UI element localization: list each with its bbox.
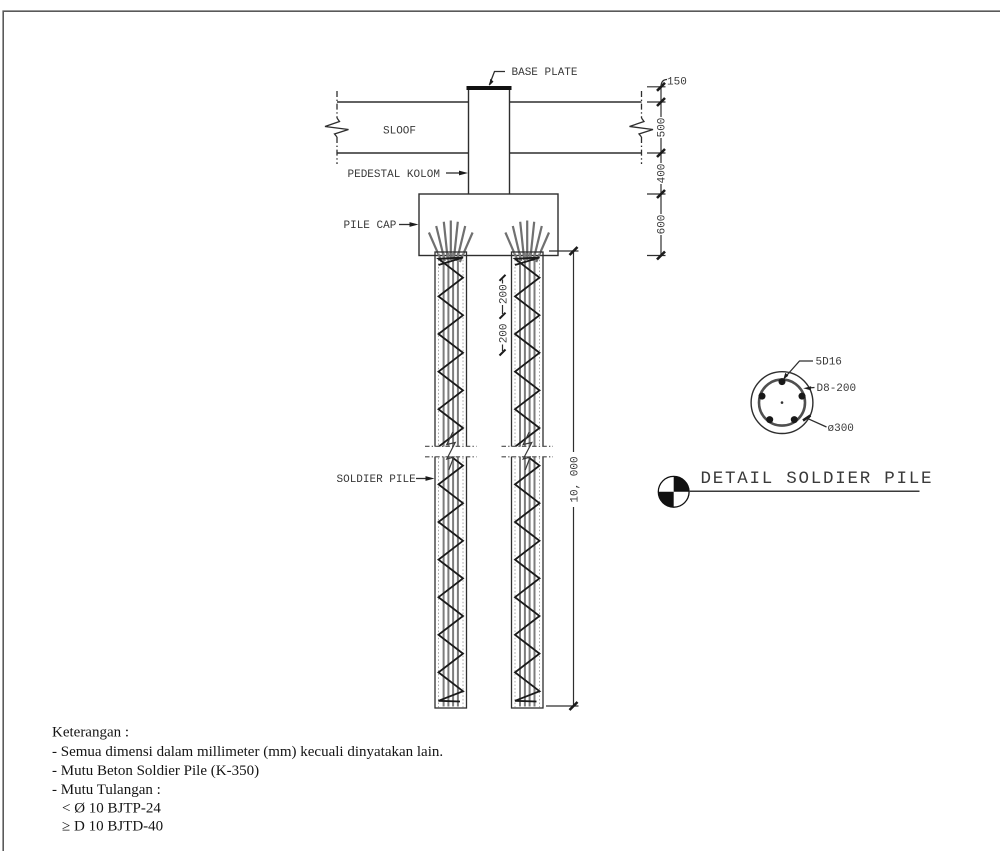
svg-text:600: 600 xyxy=(657,215,669,235)
svg-text:200: 200 xyxy=(499,323,511,343)
svg-text:SLOOF: SLOOF xyxy=(383,126,416,138)
svg-text:400: 400 xyxy=(657,164,669,184)
svg-text:SOLDIER PILE: SOLDIER PILE xyxy=(337,474,417,486)
svg-text:500: 500 xyxy=(657,118,669,138)
svg-text:- Semua dimensi dalam millimet: - Semua dimensi dalam millimeter (mm) ke… xyxy=(52,744,443,760)
svg-text:200: 200 xyxy=(499,284,511,304)
svg-text:D8-200: D8-200 xyxy=(817,383,857,395)
svg-text:BASE PLATE: BASE PLATE xyxy=(512,67,578,79)
svg-text:- Mutu Tulangan :: - Mutu Tulangan : xyxy=(52,782,161,798)
svg-text:ø300: ø300 xyxy=(828,423,854,435)
svg-text:≥ D 10 BJTD-40: ≥ D 10 BJTD-40 xyxy=(62,819,163,835)
svg-text:10, 000: 10, 000 xyxy=(570,456,582,502)
svg-text:PEDESTAL KOLOM: PEDESTAL KOLOM xyxy=(348,169,440,181)
svg-text:150: 150 xyxy=(667,77,687,89)
svg-text:DETAIL SOLDIER PILE: DETAIL SOLDIER PILE xyxy=(701,469,934,489)
svg-text:Keterangan :: Keterangan : xyxy=(52,725,129,741)
svg-text:5D16: 5D16 xyxy=(816,357,842,369)
svg-text:- Mutu Beton Soldier Pile (K-3: - Mutu Beton Soldier Pile (K-350) xyxy=(52,763,259,779)
svg-text:PILE CAP: PILE CAP xyxy=(344,220,397,232)
svg-text:< Ø 10 BJTP-24: < Ø 10 BJTP-24 xyxy=(62,801,161,817)
